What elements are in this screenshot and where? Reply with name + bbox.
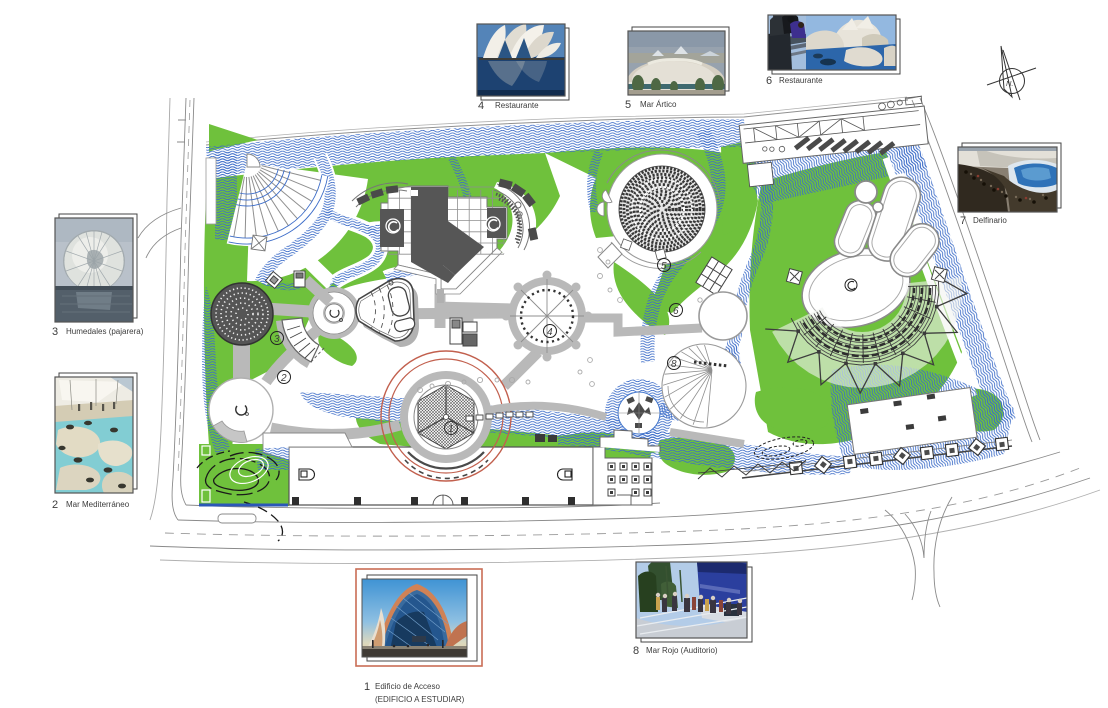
svg-text:1: 1 <box>448 424 454 435</box>
svg-text:2: 2 <box>52 499 58 511</box>
svg-text:Mar Ártico: Mar Ártico <box>640 100 677 109</box>
svg-text:Edificio de Acceso: Edificio de Acceso <box>375 682 440 691</box>
svg-text:Restaurante: Restaurante <box>495 101 539 110</box>
svg-text:3: 3 <box>274 334 280 345</box>
svg-text:Delfinario: Delfinario <box>973 216 1007 225</box>
svg-text:6: 6 <box>673 306 679 317</box>
svg-text:8: 8 <box>671 359 677 370</box>
svg-text:5: 5 <box>661 261 667 272</box>
svg-text:N.: N. <box>1006 79 1014 88</box>
svg-text:4: 4 <box>547 327 553 338</box>
svg-text:1: 1 <box>364 681 370 693</box>
svg-text:3: 3 <box>52 326 58 338</box>
svg-text:4: 4 <box>478 100 484 112</box>
svg-text:Restaurante: Restaurante <box>779 76 823 85</box>
svg-text:Mar Mediterráneo: Mar Mediterráneo <box>66 500 130 509</box>
svg-text:6: 6 <box>766 75 772 87</box>
svg-text:2: 2 <box>280 373 287 384</box>
svg-text:5: 5 <box>625 99 631 111</box>
svg-text:8: 8 <box>633 645 639 657</box>
svg-text:7: 7 <box>960 215 966 227</box>
svg-text:Humedales (pajarera): Humedales (pajarera) <box>66 327 144 336</box>
svg-text:(EDIFICIO A ESTUDIAR): (EDIFICIO A ESTUDIAR) <box>375 695 465 704</box>
svg-text:Mar Rojo (Auditorio): Mar Rojo (Auditorio) <box>646 646 718 655</box>
